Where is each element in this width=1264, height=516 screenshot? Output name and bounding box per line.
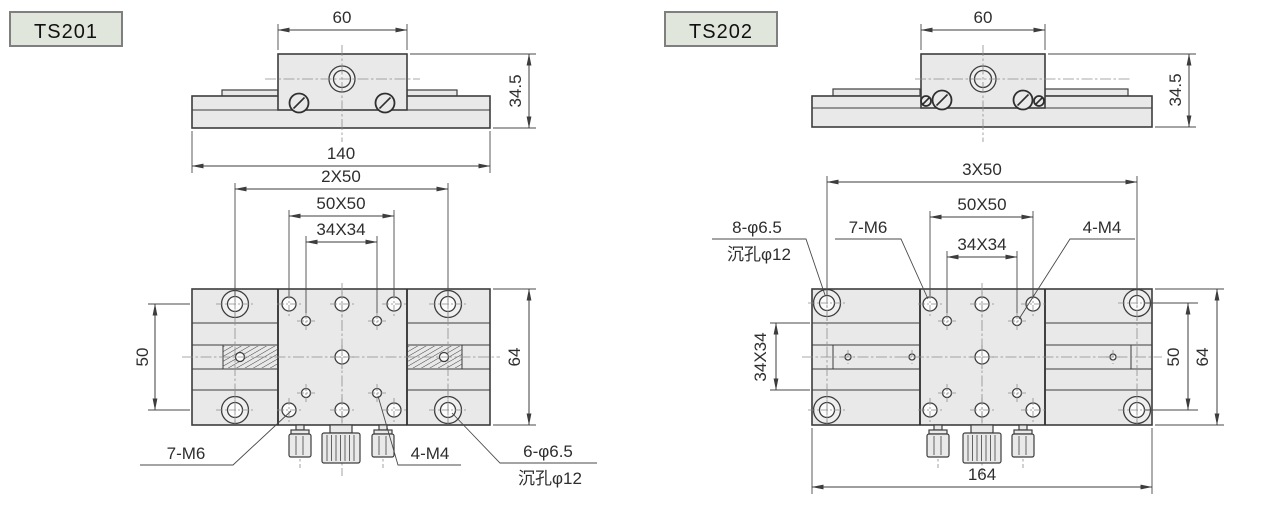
dim-left-grid: 34X34: [751, 323, 810, 390]
lock-screw-left: [290, 94, 309, 113]
dim-text-140: 140: [327, 144, 355, 163]
callout-m4-text: 4-M4: [411, 444, 450, 463]
dim-text-3x50: 3X50: [962, 160, 1002, 179]
dim-text-34x34: 34X34: [316, 220, 365, 239]
dim-text-2x50: 2X50: [321, 167, 361, 186]
drawing-canvas: TS201 60: [0, 0, 1264, 516]
dim-right-span: 50: [1145, 303, 1198, 410]
lock-screw-right: [376, 94, 395, 113]
dim-text-left-34x34: 34X34: [751, 332, 770, 381]
callout-counterbore: 8-φ6.5 沉孔φ12: [712, 218, 825, 295]
ts201-drawing: TS201 60: [0, 0, 632, 516]
adjust-knob: [963, 425, 1001, 463]
dim-text-right-50: 50: [1164, 348, 1183, 367]
callout-m6-text: 7-M6: [167, 444, 206, 463]
dim-top-width: 60: [278, 8, 407, 50]
table-tab-left: [833, 89, 920, 96]
table-tab-right: [1045, 89, 1128, 96]
lock-knob-left: [927, 425, 949, 457]
callout-cbore-text-2: 沉孔φ12: [727, 245, 791, 264]
callout-cbore-text-2: 沉孔φ12: [518, 469, 582, 488]
dim-text-64: 64: [505, 348, 524, 367]
dim-m6-grid: 50X50: [289, 194, 394, 296]
dim-text-34-5: 34.5: [1166, 73, 1185, 106]
dim-left-height: 50: [133, 304, 190, 410]
ts201-front-view: 60 34.5 140: [192, 8, 536, 173]
dim-text-164: 164: [968, 465, 996, 484]
ts202-front-view: 60 34.5: [812, 8, 1196, 142]
adjust-knob: [322, 425, 360, 463]
dim-text-34x34: 34X34: [957, 235, 1006, 254]
ts202-plan-view: 3X50 50X50 34X34 34X34 50: [712, 160, 1224, 494]
callout-cbore-text-1: 6-φ6.5: [523, 442, 573, 461]
callout-cbore-text-1: 8-φ6.5: [732, 218, 782, 237]
dim-text-60: 60: [974, 8, 993, 27]
model-label-text: TS201: [34, 21, 98, 43]
dim-text-50: 50: [133, 348, 152, 367]
lead-screw-thread-right: [407, 346, 462, 368]
dim-top-width: 60: [921, 8, 1045, 50]
dim-text-64: 64: [1193, 348, 1212, 367]
ts202-drawing: TS202: [632, 0, 1264, 516]
dim-text-50x50: 50X50: [316, 194, 365, 213]
lock-knob-left: [289, 425, 311, 457]
dim-text-34-5: 34.5: [506, 74, 525, 107]
dim-text-60: 60: [333, 8, 352, 27]
ts201-plan-view: 2X50 50X50 34X34 50 64: [133, 167, 597, 488]
model-label-text: TS202: [689, 21, 753, 43]
ts202-model-label: TS202: [665, 12, 777, 46]
callout-m6: 7-M6: [835, 218, 928, 299]
lock-knob-right: [1012, 425, 1034, 457]
dim-text-50x50: 50X50: [957, 195, 1006, 214]
callout-m6-text: 7-M6: [849, 218, 888, 237]
ts201-model-label: TS201: [10, 12, 122, 46]
callout-m4-text: 4-M4: [1083, 218, 1122, 237]
